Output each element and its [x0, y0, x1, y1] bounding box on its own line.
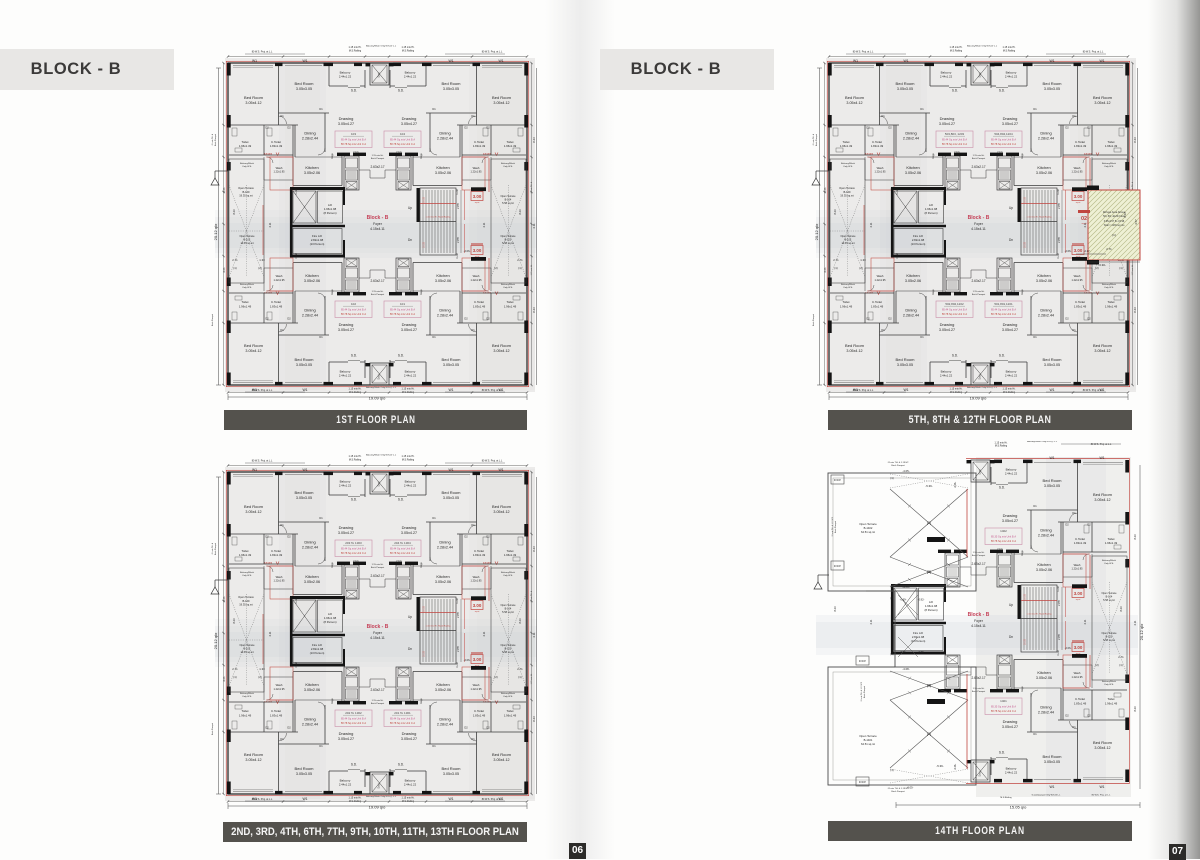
svg-text:Only W.S.: Only W.S. — [843, 166, 853, 168]
svg-text:Drawing: Drawing — [339, 322, 354, 327]
svg-text:D1: D1 — [920, 335, 924, 339]
svg-text:(8 Person): (8 Person) — [323, 620, 336, 624]
svg-text:Gage: Gage — [421, 697, 423, 703]
svg-text:-4.05-: -4.05- — [902, 469, 909, 473]
svg-text:1.15 mts Ht.: 1.15 mts Ht. — [372, 563, 384, 566]
svg-text:2.055: 2.055 — [458, 611, 460, 617]
svg-text:FRD: FRD — [353, 151, 359, 155]
svg-text:80 W.S. Proj. at L.L: 80 W.S. Proj. at L.L — [1083, 51, 1104, 54]
svg-text:Brick Parapet: Brick Parapet — [211, 314, 214, 326]
svg-text:D1: D1 — [319, 744, 323, 748]
svg-text:5.58 sq.mt: 5.58 sq.mt — [502, 651, 514, 654]
svg-text:D2: D2 — [1087, 714, 1091, 718]
svg-text:Drawing: Drawing — [1003, 116, 1018, 121]
svg-text:Foyer: Foyer — [373, 631, 383, 635]
svg-text:2.44x1.22: 2.44x1.22 — [404, 374, 417, 378]
svg-text:Balcony/Wash: Balcony/Wash — [240, 163, 255, 165]
svg-text:Block - B: Block - B — [968, 612, 990, 618]
svg-text:2.63x2.17: 2.63x2.17 — [971, 562, 985, 566]
svg-text:-11 mts TH. &: -11 mts TH. & — [211, 542, 214, 555]
svg-text:Kitchen: Kitchen — [436, 574, 449, 579]
svg-text:D1: D1 — [432, 107, 436, 111]
svg-text:19.09 q/o: 19.09 q/o — [970, 395, 987, 400]
svg-text:M.S.Railing: M.S.Railing — [1003, 50, 1016, 53]
svg-text:S.D.: S.D. — [351, 354, 357, 358]
svg-text:3.00: 3.00 — [473, 603, 482, 608]
svg-text:3.05x3.05: 3.05x3.05 — [1044, 484, 1060, 488]
svg-text:Brick Parapet: Brick Parapet — [972, 157, 986, 160]
svg-text:sq.mt: sq.mt — [1076, 201, 1081, 204]
svg-text:Only W.S.: Only W.S. — [503, 166, 513, 168]
svg-text:101: 101 — [400, 302, 405, 306]
svg-text:19.35 sq.mt: 19.35 sq.mt — [240, 651, 253, 654]
svg-text:Gage: Gage — [421, 561, 423, 567]
svg-text:D1: D1 — [1072, 511, 1076, 515]
svg-text:Guards/parapet Only W.S.@ L.L: Guards/parapet Only W.S.@ L.L — [1032, 794, 1062, 797]
svg-text:2.71: 2.71 — [1106, 247, 1112, 251]
svg-text:3.05x2.06: 3.05x2.06 — [435, 688, 451, 692]
svg-text:D1: D1 — [1033, 732, 1037, 736]
svg-text:Bed Room: Bed Room — [492, 95, 512, 100]
svg-text:1.22x1.95: 1.22x1.95 — [1072, 171, 1084, 174]
svg-text:Bed Room: Bed Room — [896, 357, 916, 362]
svg-text:(13 Person): (13 Person) — [310, 242, 325, 246]
svg-text:85.44 Sq.mts Unit B.A: 85.44 Sq.mts Unit B.A — [390, 716, 415, 720]
svg-text:Gage: Gage — [1022, 549, 1024, 555]
svg-text:D2: D2 — [287, 317, 291, 321]
svg-text:2.28x2.44: 2.28x2.44 — [302, 137, 318, 141]
svg-text:3.05x2.06: 3.05x2.06 — [1036, 568, 1052, 572]
svg-text:D2: D2 — [464, 126, 468, 130]
svg-text:-4.08-: -4.08- — [902, 585, 909, 589]
svg-text:10.23: 10.23 — [1025, 593, 1027, 599]
svg-text:B-1402: B-1402 — [864, 526, 873, 530]
svg-text:S.D.: S.D. — [999, 354, 1005, 358]
svg-text:Brick Parapet: Brick Parapet — [972, 293, 986, 296]
svg-text:-4.08-: -4.08- — [902, 667, 909, 671]
svg-text:S.D.: S.D. — [398, 763, 404, 767]
svg-text:Brick Parapet: Brick Parapet — [972, 554, 986, 557]
svg-text:(3): (3) — [890, 652, 893, 656]
svg-text:1.83x1.49: 1.83x1.49 — [270, 144, 283, 148]
svg-text:1.96x1.49: 1.96x1.49 — [239, 553, 252, 557]
svg-text:Drawing: Drawing — [402, 731, 417, 736]
svg-text:2.44x1.22: 2.44x1.22 — [339, 374, 352, 378]
svg-text:2.71: 2.71 — [232, 667, 238, 671]
svg-text:19.35 sq.mt: 19.35 sq.mt — [240, 242, 253, 245]
svg-text:104: 104 — [400, 132, 405, 136]
svg-text:W1: W1 — [1099, 59, 1104, 63]
svg-text:Gage: Gage — [1022, 685, 1024, 691]
svg-text:85.44 Sq.mts Unit B.A: 85.44 Sq.mts Unit B.A — [991, 307, 1016, 311]
svg-text:Balcony/Wash: Balcony/Wash — [240, 572, 255, 574]
svg-text:20.12 q/o: 20.12 q/o — [814, 223, 819, 240]
svg-text:1.22x1.95: 1.22x1.95 — [471, 580, 483, 583]
svg-text:1.15 mts Ht. Hand Railing: 1.15 mts Ht. Hand Railing — [1027, 216, 1053, 219]
svg-text:3.05x3.05: 3.05x3.05 — [296, 363, 312, 367]
svg-text:M.S.Railing: M.S.Railing — [349, 50, 362, 53]
svg-text:Bed Room: Bed Room — [1093, 740, 1113, 745]
svg-text:2.28x2.44: 2.28x2.44 — [1038, 137, 1054, 141]
svg-text:203 To 1303: 203 To 1303 — [345, 541, 362, 545]
svg-text:Brick Parapet: Brick Parapet — [891, 464, 905, 467]
svg-text:Kitchen: Kitchen — [1037, 562, 1050, 567]
svg-text:2.71: 2.71 — [1118, 655, 1124, 659]
svg-text:Gage: Gage — [332, 561, 334, 567]
svg-text:1.96x1.49: 1.96x1.49 — [1105, 304, 1118, 308]
svg-text:80 W.S. Proj. at L.L: 80 W.S. Proj. at L.L — [252, 460, 273, 463]
svg-text:D2: D2 — [265, 126, 269, 130]
svg-text:(2): (2) — [1095, 663, 1098, 667]
svg-text:2.63x2.17: 2.63x2.17 — [370, 574, 384, 578]
svg-text:85.44 Sq.mts Unit B.A: 85.44 Sq.mts Unit B.A — [341, 546, 366, 550]
svg-text:1.83x1.49: 1.83x1.49 — [270, 713, 283, 717]
svg-text:Wash: Wash — [1074, 671, 1081, 675]
svg-text:D2: D2 — [888, 126, 892, 130]
svg-text:Block - B: Block - B — [367, 215, 389, 221]
svg-text:19.35 sq.mt: 19.35 sq.mt — [239, 194, 253, 198]
svg-text:3.05x4.12: 3.05x4.12 — [493, 510, 509, 514]
svg-text:1.22x1.95: 1.22x1.95 — [274, 171, 286, 174]
svg-text:Kitchen: Kitchen — [305, 273, 318, 278]
svg-text:8.23: 8.23 — [833, 209, 837, 215]
svg-text:3.05x2.06: 3.05x2.06 — [304, 171, 320, 175]
svg-text:Block - B: Block - B — [367, 624, 389, 630]
svg-text:3.05x2.06: 3.05x2.06 — [304, 688, 320, 692]
svg-text:2.28x2.44: 2.28x2.44 — [302, 314, 318, 318]
svg-text:Only W.S.: Only W.S. — [1104, 287, 1114, 289]
svg-text:Wash: Wash — [1074, 166, 1081, 170]
svg-text:D1: D1 — [432, 516, 436, 520]
svg-text:(2): (2) — [927, 732, 931, 736]
svg-text:2.71: 2.71 — [232, 258, 238, 262]
svg-text:(3): (3) — [927, 684, 931, 688]
svg-text:Bed Room: Bed Room — [442, 81, 462, 86]
svg-text:C+W: C+W — [296, 189, 298, 195]
svg-text:3.05x4.12: 3.05x4.12 — [1094, 498, 1110, 502]
svg-text:1.15 mts Ht. Hand Railing: 1.15 mts Ht. Hand Railing — [426, 216, 452, 219]
svg-text:W1: W1 — [853, 388, 858, 392]
svg-text:D1: D1 — [1072, 114, 1076, 118]
svg-text:3.05x3.05: 3.05x3.05 — [1044, 87, 1060, 91]
svg-text:3.05x4.12: 3.05x4.12 — [1094, 101, 1110, 105]
svg-text:Up: Up — [1009, 603, 1013, 607]
svg-text:Foyer: Foyer — [974, 619, 984, 623]
svg-text:4.11: 4.11 — [482, 222, 486, 227]
svg-text:Drawing: Drawing — [1003, 719, 1018, 724]
svg-text:D1: D1 — [920, 107, 924, 111]
svg-text:Bed Room: Bed Room — [442, 357, 462, 362]
svg-text:85.44 Sq.mts Unit B.A: 85.44 Sq.mts Unit B.A — [942, 307, 967, 311]
svg-text:FRD: FRD — [997, 292, 1003, 296]
svg-text:Brick Parapet: Brick Parapet — [834, 521, 837, 533]
svg-text:.11 mts TH. & 1.13 HT.: .11 mts TH. & 1.13 HT. — [887, 787, 909, 790]
svg-text:Brick Parapet: Brick Parapet — [371, 293, 385, 296]
svg-text:D1: D1 — [280, 328, 284, 332]
svg-text:Dining: Dining — [905, 308, 916, 313]
svg-text:Bed Room: Bed Room — [295, 490, 315, 495]
svg-text:D1: D1 — [471, 114, 475, 118]
svg-text:Bed Room: Bed Room — [492, 504, 512, 509]
svg-text:Dn: Dn — [408, 647, 412, 651]
svg-text:2.055: 2.055 — [1059, 599, 1061, 605]
svg-text:1.15 mts Ht.: 1.15 mts Ht. — [973, 290, 985, 293]
svg-text:Brick Parapet: Brick Parapet — [211, 723, 214, 735]
svg-text:85.44 Sq.mts Unit B.A: 85.44 Sq.mts Unit B.A — [341, 137, 366, 141]
svg-text:Balcony/Wash: Balcony/Wash — [841, 284, 856, 286]
svg-text:58.78 Sq.mts Unit C.A: 58.78 Sq.mts Unit C.A — [390, 312, 415, 316]
svg-text:501,801,1201: 501,801,1201 — [994, 302, 1013, 306]
svg-text:58.78 Sq.mts Unit C.A: 58.78 Sq.mts Unit C.A — [390, 142, 415, 146]
svg-text:2.44x1.22: 2.44x1.22 — [339, 75, 352, 79]
svg-text:C+W: C+W — [897, 189, 899, 195]
svg-text:3.00: 3.00 — [473, 194, 482, 199]
svg-text:1.96x1.49: 1.96x1.49 — [504, 553, 517, 557]
svg-text:Only W.S.: Only W.S. — [1104, 166, 1114, 168]
svg-text:D2: D2 — [1087, 317, 1091, 321]
svg-text:58.78 Sq.mts Unit C.A: 58.78 Sq.mts Unit C.A — [991, 312, 1016, 316]
svg-text:1.22x1.95: 1.22x1.95 — [471, 279, 483, 282]
svg-text:Dining: Dining — [1040, 528, 1051, 533]
svg-text:Dining: Dining — [439, 717, 450, 722]
svg-text:Kitchen: Kitchen — [1037, 165, 1050, 170]
svg-text:2.44x1.22: 2.44x1.22 — [339, 484, 352, 488]
svg-text:(1): (1) — [890, 476, 893, 480]
svg-text:80 W.S. Proj. at L.L: 80 W.S. Proj. at L.L — [482, 51, 503, 54]
svg-text:Kitchen: Kitchen — [906, 165, 919, 170]
svg-text:S.D.: S.D. — [999, 751, 1005, 755]
svg-text:Balcony/Wash: Balcony/Wash — [501, 572, 516, 574]
svg-text:(13 Person): (13 Person) — [911, 242, 926, 246]
svg-text:3.05x4.12: 3.05x4.12 — [493, 101, 509, 105]
svg-text:Bed Room: Bed Room — [1093, 343, 1113, 348]
svg-text:2.44x1.22: 2.44x1.22 — [1005, 374, 1018, 378]
svg-text:Duct: Duct — [979, 771, 982, 776]
svg-text:3.05x4.12: 3.05x4.12 — [1094, 746, 1110, 750]
svg-text:3.05x4.27: 3.05x4.27 — [939, 122, 955, 126]
svg-text:D2: D2 — [486, 317, 490, 321]
svg-text:Bed Room: Bed Room — [244, 95, 264, 100]
svg-text:Brick Parapet: Brick Parapet — [214, 543, 217, 555]
svg-text:(13 Person): (13 Person) — [310, 651, 325, 655]
svg-text:58.78 Sq.mts Unit C.A: 58.78 Sq.mts Unit C.A — [341, 312, 366, 316]
svg-text:Balcony/Wash: Balcony/Wash — [841, 163, 856, 165]
svg-text:Balcony/Wash: Balcony/Wash — [1102, 163, 1117, 165]
svg-text:1.15 mts Ht. Hand Railing: 1.15 mts Ht. Hand Railing — [426, 625, 452, 628]
svg-text:3.00: 3.00 — [1074, 194, 1083, 199]
svg-text:D1: D1 — [471, 737, 475, 741]
svg-text:2.44x1.22: 2.44x1.22 — [940, 75, 953, 79]
svg-text:8.23: 8.23 — [1123, 212, 1127, 218]
svg-text:2.44x1.22: 2.44x1.22 — [1005, 75, 1018, 79]
svg-text:64.51 sq.mt: 64.51 sq.mt — [861, 742, 875, 746]
svg-text:2.28x2.44: 2.28x2.44 — [437, 137, 453, 141]
svg-text:sq.mt: sq.mt — [1082, 222, 1087, 225]
svg-text:R.W.P.: R.W.P. — [859, 660, 866, 663]
svg-text:Open Terrace: Open Terrace — [238, 186, 254, 190]
svg-text:85.44 Sq.mts Unit B.A: 85.44 Sq.mts Unit B.A — [341, 307, 366, 311]
svg-text:58.78 Sq.mts Unit C.A: 58.78 Sq.mts Unit C.A — [991, 709, 1016, 713]
svg-text:Drawing: Drawing — [402, 525, 417, 530]
svg-text:1.96x1.49: 1.96x1.49 — [239, 304, 252, 308]
svg-text:8.23: 8.23 — [1133, 307, 1137, 313]
svg-text:4.11: 4.11 — [482, 631, 486, 636]
svg-text:M.S.Railing: M.S.Railing — [1000, 797, 1012, 799]
svg-text:Wash: Wash — [276, 274, 283, 278]
svg-text:-3.30-: -3.30- — [1098, 263, 1106, 267]
svg-text:Bed Room: Bed Room — [244, 343, 264, 348]
svg-text:Balcony/Wash Only W.S.@ L.L: Balcony/Wash Only W.S.@ L.L — [366, 455, 397, 457]
svg-text:10.23: 10.23 — [424, 605, 426, 611]
svg-text:S.D.: S.D. — [351, 89, 357, 93]
svg-text:3.00: 3.00 — [1074, 591, 1083, 596]
svg-text:3.05x2.06: 3.05x2.06 — [1036, 279, 1052, 283]
svg-text:(1): (1) — [1112, 233, 1116, 237]
svg-text:M.S.Railing: M.S.Railing — [402, 50, 415, 53]
svg-text:3.95x4.57 5+ 15.98: 3.95x4.57 5+ 15.98 — [1104, 220, 1125, 223]
svg-text:FRD: FRD — [353, 560, 359, 564]
svg-text:2.71: 2.71 — [517, 667, 523, 671]
svg-text:1.96x1.49: 1.96x1.49 — [840, 304, 853, 308]
svg-text:D2: D2 — [265, 317, 269, 321]
svg-text:W1: W1 — [448, 797, 453, 801]
svg-text:2.28x2.44: 2.28x2.44 — [302, 723, 318, 727]
svg-text:5.58 sq.mt: 5.58 sq.mt — [502, 242, 514, 245]
svg-text:Kitchen: Kitchen — [436, 165, 449, 170]
svg-text:502,802,1202: 502,802,1202 — [945, 302, 964, 306]
svg-text:2.44x1.22: 2.44x1.22 — [404, 783, 417, 787]
svg-text:4.15x4.11: 4.15x4.11 — [971, 624, 986, 628]
svg-text:15.05 q/o: 15.05 q/o — [1010, 805, 1027, 810]
svg-text:1.83x1.49: 1.83x1.49 — [473, 144, 486, 148]
svg-text:503,803, 1203: 503,803, 1203 — [945, 132, 965, 136]
svg-text:85.35 Sq.mts Unit B.A: 85.35 Sq.mts Unit B.A — [991, 704, 1016, 708]
svg-text:W1: W1 — [1099, 785, 1104, 789]
svg-text:sq.mt: sq.mt — [1076, 598, 1081, 601]
svg-text:1.83x1.49: 1.83x1.49 — [473, 713, 486, 717]
svg-text:80 W.S. Proj. at L.L: 80 W.S. Proj. at L.L — [1091, 443, 1112, 446]
svg-text:Brick Parapet: Brick Parapet — [812, 314, 815, 326]
svg-text:Gage: Gage — [933, 152, 935, 158]
svg-text:1.22x1.95: 1.22x1.95 — [274, 688, 286, 691]
svg-text:Duct: Duct — [378, 783, 381, 788]
svg-text:FRD: FRD — [396, 151, 402, 155]
svg-text:58.78 Sq.mts Unit C.A: 58.78 Sq.mts Unit C.A — [390, 721, 415, 725]
svg-text:3.05x2.06: 3.05x2.06 — [1036, 676, 1052, 680]
svg-text:Brick Parapet: Brick Parapet — [371, 702, 385, 705]
svg-text:B-109: B-109 — [844, 190, 851, 194]
svg-text:8.23: 8.23 — [1133, 137, 1137, 143]
svg-text:Drawing: Drawing — [940, 116, 955, 121]
svg-text:Balcony/Wash: Balcony/Wash — [501, 693, 516, 695]
svg-text:Gage: Gage — [332, 152, 334, 158]
svg-text:4.11: 4.11 — [1083, 619, 1087, 624]
svg-text:D2: D2 — [265, 726, 269, 730]
svg-text:Kitchen: Kitchen — [305, 682, 318, 687]
svg-text:2.28x2.44: 2.28x2.44 — [302, 546, 318, 550]
svg-text:Bed Room: Bed Room — [295, 81, 315, 86]
svg-text:Only W.S.: Only W.S. — [242, 287, 252, 289]
svg-text:D2: D2 — [888, 317, 892, 321]
svg-text:1.96x1.49: 1.96x1.49 — [1105, 541, 1118, 545]
svg-text:Wash: Wash — [473, 166, 480, 170]
svg-text:Dining: Dining — [304, 540, 315, 545]
svg-text:1.22x1.95: 1.22x1.95 — [471, 688, 483, 691]
svg-text:S.D.: S.D. — [351, 763, 357, 767]
svg-text:Foyer: Foyer — [373, 222, 383, 226]
svg-text:3.05x3.05: 3.05x3.05 — [443, 772, 459, 776]
svg-text:B-1401: B-1401 — [864, 738, 873, 742]
svg-text:1.96x1.49: 1.96x1.49 — [239, 713, 252, 717]
svg-text:Bed Room: Bed Room — [295, 766, 315, 771]
svg-text:4.11: 4.11 — [268, 631, 272, 636]
svg-text:W1: W1 — [1049, 456, 1054, 460]
svg-text:D2: D2 — [486, 726, 490, 730]
svg-text:2.63x2.17: 2.63x2.17 — [370, 165, 384, 169]
svg-text:8.23: 8.23 — [532, 716, 536, 722]
svg-text:2.44x1.22: 2.44x1.22 — [1005, 472, 1018, 476]
svg-text:C+W: C+W — [457, 598, 459, 604]
svg-text:10.23: 10.23 — [424, 196, 426, 202]
svg-text:4.11: 4.11 — [869, 222, 873, 227]
svg-text:4.15x4.11: 4.15x4.11 — [370, 636, 385, 640]
svg-text:C+W: C+W — [897, 253, 899, 259]
svg-text:Bed Room: Bed Room — [1043, 81, 1063, 86]
svg-text:W1: W1 — [903, 388, 908, 392]
svg-text:D1: D1 — [1033, 335, 1037, 339]
svg-text:1.96x1.49: 1.96x1.49 — [239, 144, 252, 148]
svg-text:85.44 Sq.mts Unit B.A: 85.44 Sq.mts Unit B.A — [390, 546, 415, 550]
svg-text:3.05x4.27: 3.05x4.27 — [401, 737, 417, 741]
svg-text:4.11: 4.11 — [268, 222, 272, 227]
svg-text:Up: Up — [408, 615, 412, 619]
svg-text:S.D.: S.D. — [398, 354, 404, 358]
svg-text:(3): (3) — [927, 570, 931, 574]
svg-text:S.D.: S.D. — [952, 89, 958, 93]
svg-text:Only W.S.: Only W.S. — [242, 696, 252, 698]
svg-text:Balcony/Wash Only W.S.@ L.L: Balcony/Wash Only W.S.@ L.L — [967, 387, 998, 389]
svg-text:Bed Room: Bed Room — [1093, 492, 1113, 497]
svg-text:1.96x1.49: 1.96x1.49 — [1105, 701, 1118, 705]
svg-text:3.05x3.05: 3.05x3.05 — [443, 363, 459, 367]
svg-text:Wash: Wash — [276, 575, 283, 579]
svg-text:2.055: 2.055 — [458, 202, 460, 208]
svg-text:1401: 1401 — [1000, 699, 1007, 703]
svg-text:85.35 Sq.mts Unit B.A: 85.35 Sq.mts Unit B.A — [991, 534, 1016, 538]
svg-text:3.00: 3.00 — [473, 248, 482, 253]
svg-text:-0.99-: -0.99- — [900, 650, 907, 654]
svg-text:W1: W1 — [1049, 59, 1054, 63]
svg-text:C+W: C+W — [296, 253, 298, 259]
svg-text:-0.92-: -0.92- — [918, 650, 925, 654]
svg-text:D1: D1 — [432, 335, 436, 339]
svg-text:2.055: 2.055 — [458, 645, 460, 651]
svg-text:Balcony/Wash: Balcony/Wash — [240, 284, 255, 286]
svg-text:80 W.S. Proj. at L.L: 80 W.S. Proj. at L.L — [252, 51, 273, 54]
svg-text:2.63x2.17: 2.63x2.17 — [971, 165, 985, 169]
svg-text:B-109: B-109 — [243, 190, 250, 194]
svg-text:(2): (2) — [258, 675, 261, 679]
svg-text:1.96x1.49: 1.96x1.49 — [840, 144, 853, 148]
svg-text:Dining: Dining — [1040, 131, 1051, 136]
svg-text:D1: D1 — [1033, 107, 1037, 111]
svg-text:M.S.Railing: M.S.Railing — [402, 459, 415, 462]
svg-text:1.83x1.49: 1.83x1.49 — [270, 304, 283, 308]
svg-text:D1: D1 — [471, 328, 475, 332]
svg-text:W1: W1 — [448, 468, 453, 472]
svg-text:Wash: Wash — [473, 575, 480, 579]
svg-text:3.05x2.06: 3.05x2.06 — [435, 580, 451, 584]
